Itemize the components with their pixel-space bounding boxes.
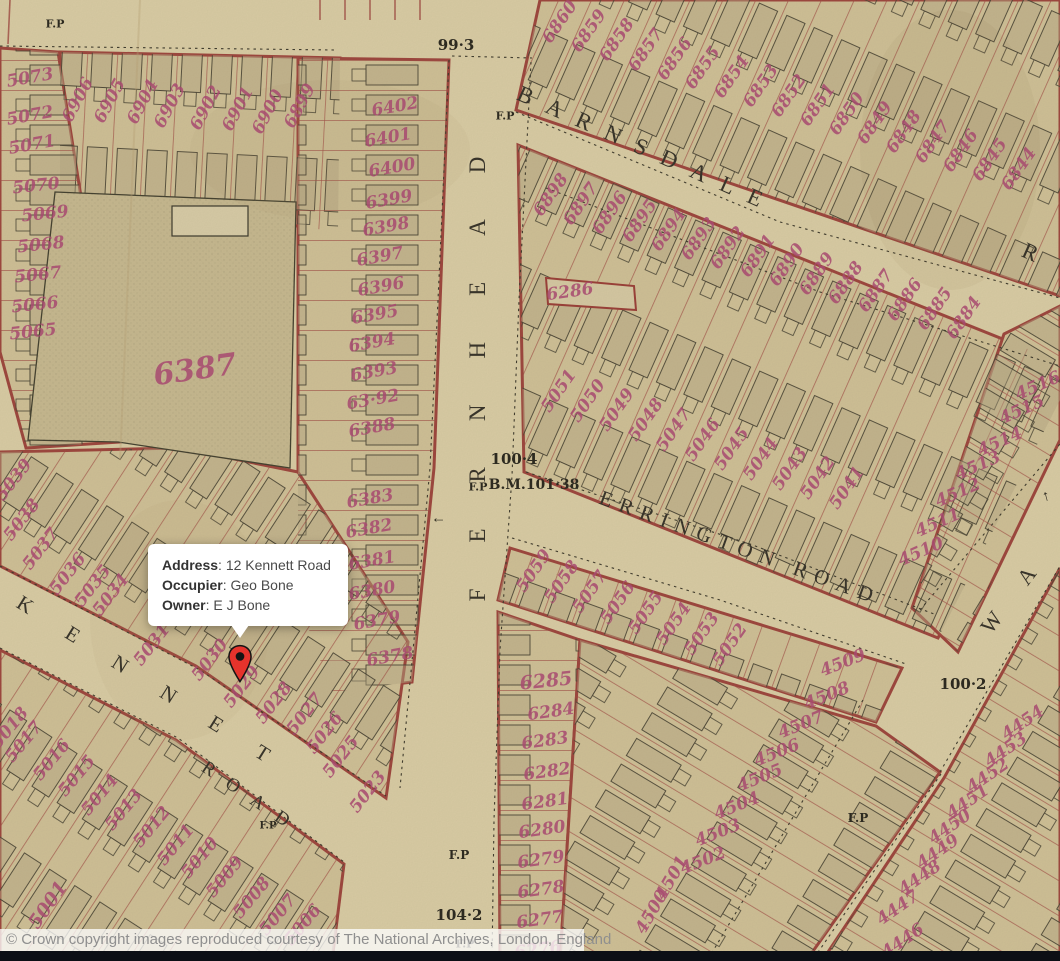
property-tooltip: Address12 Kennett Road OccupierGeo Bone … xyxy=(148,544,348,626)
pin-hole xyxy=(236,652,245,661)
address-value: 12 Kennett Road xyxy=(226,557,331,573)
occupier-label: Occupier xyxy=(162,577,230,593)
owner-value: E J Bone xyxy=(213,597,270,613)
occupier-value: Geo Bone xyxy=(230,577,293,593)
bottom-bar xyxy=(0,951,1060,961)
address-label: Address xyxy=(162,557,226,573)
map-pin-marker[interactable] xyxy=(227,644,253,684)
tooltip-address-row: Address12 Kennett Road xyxy=(162,555,334,575)
historical-map-canvas[interactable] xyxy=(0,0,1060,961)
map-viewer: 5073507250715070506950685067506650656906… xyxy=(0,0,1060,961)
copyright-notice: © Crown copyright images reproduced cour… xyxy=(0,929,584,951)
tooltip-occupier-row: OccupierGeo Bone xyxy=(162,575,334,595)
tooltip-owner-row: OwnerE J Bone xyxy=(162,595,334,615)
owner-label: Owner xyxy=(162,597,213,613)
